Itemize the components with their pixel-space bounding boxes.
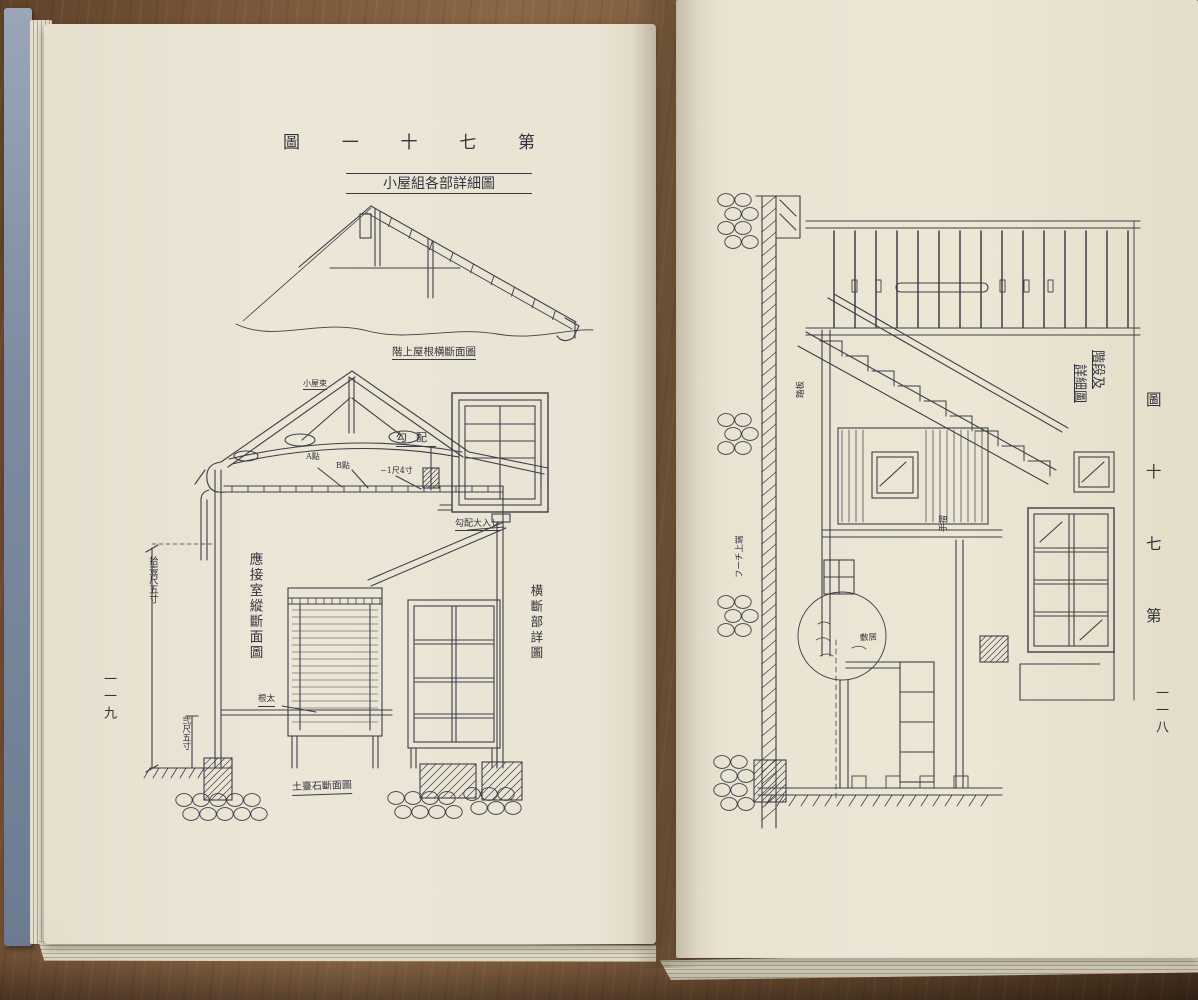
label-daiire: 勾配大入レ bbox=[455, 519, 500, 531]
label-eave-dimension: −1尺4寸 bbox=[380, 466, 413, 475]
label-sill: 敷居 bbox=[860, 633, 878, 644]
label-handrail: 手摺 bbox=[940, 515, 950, 532]
caption-right-line1: 階段及 bbox=[1089, 350, 1104, 389]
figure-caption-left: 小屋組各部詳細圖 bbox=[346, 173, 532, 194]
left-page bbox=[44, 24, 656, 944]
label-neda: 根太 bbox=[258, 695, 275, 707]
label-point-a: A點 bbox=[306, 452, 320, 461]
label-section-title: 應接室縱斷面圖 bbox=[246, 552, 262, 702]
label-pitch: 勾配 bbox=[396, 432, 436, 447]
label-cross-detail: 横斷部詳圖 bbox=[528, 584, 542, 704]
label-koyazuka: 小屋束 bbox=[303, 379, 327, 390]
label-tread: 踏板 bbox=[797, 381, 807, 398]
label-roof-section: 階上屋根横斷面圖 bbox=[392, 346, 476, 360]
figure-title-right: 圖 十 七 第 bbox=[1146, 392, 1162, 626]
table-shadow bbox=[0, 955, 1198, 1000]
book-cover-edge bbox=[4, 8, 32, 946]
label-plinth-section: 土臺石斷面圖 bbox=[292, 780, 352, 796]
label-foundation-dimension: 弐尺五寸 bbox=[180, 716, 190, 768]
label-wall-finish: フーチ上端 bbox=[736, 535, 746, 578]
right-page bbox=[676, 0, 1198, 958]
label-point-b: B點 bbox=[336, 461, 350, 470]
caption-right-line2: 詳細圖 bbox=[1071, 364, 1086, 403]
page-number-right: 一一八 bbox=[1152, 686, 1167, 737]
page-number-left: 一一九 bbox=[100, 672, 115, 723]
label-height-dimension: 拾壹尺五寸 bbox=[146, 556, 157, 666]
figure-title-left: 圖 一 十 七 第 bbox=[283, 134, 535, 154]
book-photo: 圖 一 十 七 第 小屋組各部詳細圖 階上屋根横斷面圖 小屋束 勾配 A點 B點… bbox=[0, 0, 1198, 1000]
